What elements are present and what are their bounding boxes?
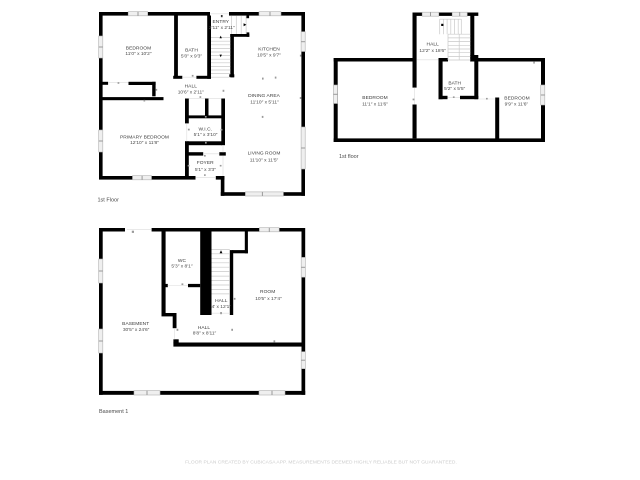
svg-text:PRIMARY BEDROOM: PRIMARY BEDROOM — [120, 134, 169, 140]
svg-text:W.I.C.: W.I.C. — [199, 127, 213, 133]
svg-text:1st floor: 1st floor — [339, 154, 359, 160]
svg-text:BEDROOM: BEDROOM — [504, 96, 529, 102]
svg-text:KITCHEN: KITCHEN — [258, 47, 280, 53]
svg-text:5′0″ x 9′3″: 5′0″ x 9′3″ — [181, 54, 202, 60]
svg-text:FOYER: FOYER — [197, 160, 214, 166]
svg-text:LIVING ROOM: LIVING ROOM — [248, 151, 281, 157]
svg-text:10′5″ x 9′7″: 10′5″ x 9′7″ — [257, 53, 281, 59]
svg-text:HALL: HALL — [215, 298, 228, 304]
svg-text:4′ x 12′1″: 4′ x 12′1″ — [212, 304, 232, 310]
svg-text:Basement 1: Basement 1 — [99, 409, 128, 415]
svg-text:DINING AREA: DINING AREA — [248, 93, 280, 99]
svg-text:11′0″ x 10′2″: 11′0″ x 10′2″ — [125, 51, 151, 57]
svg-text:HALL: HALL — [198, 325, 211, 331]
svg-text:HALL: HALL — [427, 42, 440, 48]
svg-text:11′1″ x 11′6″: 11′1″ x 11′6″ — [362, 101, 388, 107]
svg-text:1st Floor: 1st Floor — [98, 197, 120, 203]
svg-text:BATH: BATH — [448, 81, 461, 87]
svg-text:BASEMENT: BASEMENT — [122, 321, 149, 327]
svg-text:5′1″ x 3′10″: 5′1″ x 3′10″ — [194, 132, 218, 138]
svg-text:8′8″ x 8′11″: 8′8″ x 8′11″ — [193, 330, 217, 336]
svg-text:30′5″ x 24′6″: 30′5″ x 24′6″ — [123, 327, 150, 333]
svg-text:11′10″ x 11′5″: 11′10″ x 11′5″ — [250, 157, 279, 163]
svg-text:10′6″ x 2′11″: 10′6″ x 2′11″ — [178, 89, 204, 95]
svg-text:ROOM: ROOM — [260, 289, 275, 295]
svg-text:BATH: BATH — [185, 48, 198, 54]
svg-text:BEDROOM: BEDROOM — [362, 95, 387, 101]
svg-text:5′3″ x 8′1″: 5′3″ x 8′1″ — [171, 263, 192, 269]
svg-text:12′2″ x 18′6″: 12′2″ x 18′6″ — [419, 48, 446, 54]
svg-text:5′2″ x 5′5″: 5′2″ x 5′5″ — [444, 86, 465, 92]
svg-text:WC: WC — [178, 258, 187, 264]
svg-text:5′1″ x 3′3″: 5′1″ x 3′3″ — [195, 167, 216, 173]
svg-text:12′10″ x 11′8″: 12′10″ x 11′8″ — [130, 140, 159, 146]
svg-text:FLOOR PLAN CREATED BY CUBICASA: FLOOR PLAN CREATED BY CUBICASA APP. MEAS… — [185, 460, 457, 466]
svg-text:9′9″ x 11′6″: 9′9″ x 11′6″ — [505, 101, 529, 107]
svg-text:BEDROOM: BEDROOM — [126, 46, 151, 52]
svg-text:11′10″ x 5′11″: 11′10″ x 5′11″ — [250, 99, 279, 105]
svg-text:ENTRY: ENTRY — [213, 19, 230, 25]
svg-text:10′5″ x 17′4″: 10′5″ x 17′4″ — [255, 296, 282, 302]
svg-text:HALL: HALL — [185, 84, 198, 90]
svg-text:2′11″ x 2′11″: 2′11″ x 2′11″ — [209, 25, 235, 31]
